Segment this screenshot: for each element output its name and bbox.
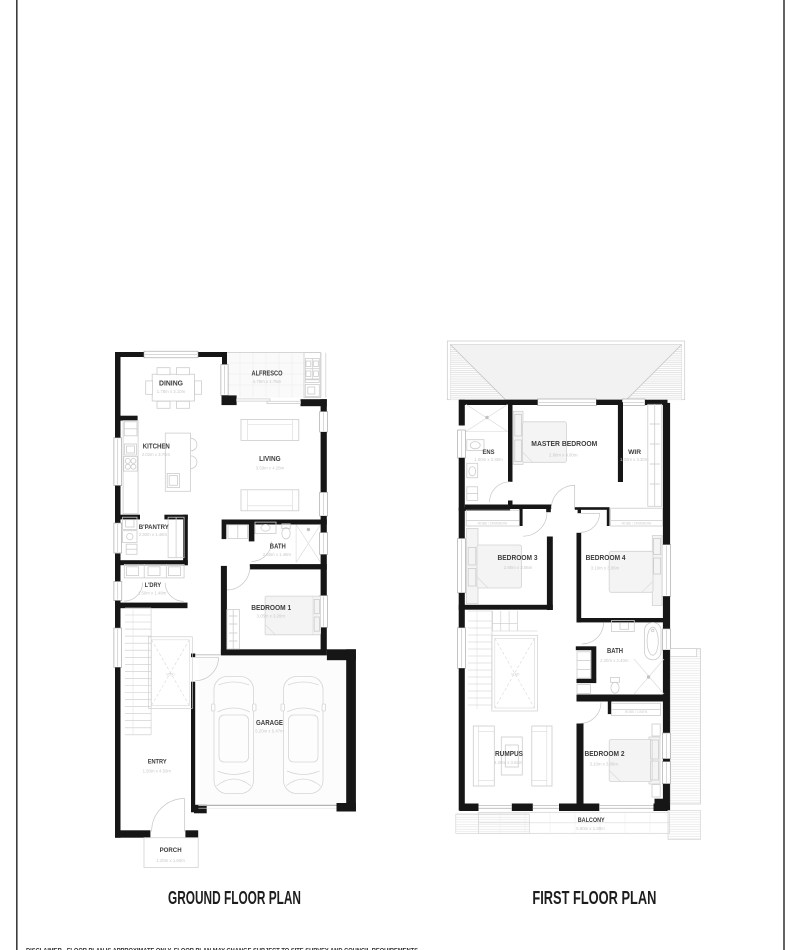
svg-text:3.59m x 4.28m: 3.59m x 4.28m xyxy=(256,466,285,471)
svg-text:2.80m x 3.06m: 2.80m x 3.06m xyxy=(504,565,533,570)
svg-text:KITCHEN: KITCHEN xyxy=(143,444,170,451)
svg-text:ROBE / DRAWERS: ROBE / DRAWERS xyxy=(478,522,508,526)
svg-text:L'DRY: L'DRY xyxy=(145,582,162,589)
svg-text:GROUND FLOOR PLAN: GROUND FLOOR PLAN xyxy=(168,888,301,908)
svg-text:GARAGE: GARAGE xyxy=(256,720,283,727)
svg-text:5.20m x 5.47m: 5.20m x 5.47m xyxy=(255,728,284,733)
svg-text:ROBE / LINEN: ROBE / LINEN xyxy=(625,710,648,714)
svg-text:WIR: WIR xyxy=(628,449,641,456)
svg-text:BEDROOM 2: BEDROOM 2 xyxy=(585,751,625,758)
svg-text:2.20m x 2.40m: 2.20m x 2.40m xyxy=(600,658,629,663)
svg-text:ALFRESCO: ALFRESCO xyxy=(252,371,283,378)
svg-text:BATH: BATH xyxy=(270,544,286,551)
svg-text:2.30m x 1.48m: 2.30m x 1.48m xyxy=(139,532,168,537)
svg-text:BALCONY: BALCONY xyxy=(578,817,606,824)
svg-text:VOID: VOID xyxy=(166,672,175,676)
svg-text:FIRST FLOOR PLAN: FIRST FLOOR PLAN xyxy=(532,888,656,908)
svg-text:BEDROOM 4: BEDROOM 4 xyxy=(586,555,626,562)
svg-text:3.10m x 3.06m: 3.10m x 3.06m xyxy=(590,762,619,767)
svg-text:DINING: DINING xyxy=(159,381,184,388)
svg-text:RUMPUS: RUMPUS xyxy=(495,751,523,758)
svg-text:3.05m x 3.20m: 3.05m x 3.20m xyxy=(256,613,285,618)
svg-text:5.90m x 1.80m: 5.90m x 1.80m xyxy=(576,826,605,831)
svg-text:1.50m x 1.48m: 1.50m x 1.48m xyxy=(138,591,167,596)
svg-text:PORCH: PORCH xyxy=(160,847,182,854)
svg-text:ROBE / DRAWERS: ROBE / DRAWERS xyxy=(622,521,652,525)
svg-text:1.78m x 3.10m: 1.78m x 3.10m xyxy=(157,389,186,394)
svg-text:BEDROOM 1: BEDROOM 1 xyxy=(251,605,291,612)
svg-text:4.20m x 3.62m: 4.20m x 3.62m xyxy=(494,760,523,765)
svg-text:ENTRY: ENTRY xyxy=(148,759,168,766)
svg-text:1.00m x 3.30m: 1.00m x 3.30m xyxy=(620,457,649,462)
svg-text:VOID: VOID xyxy=(511,672,520,676)
svg-text:MASTER BEDROOM: MASTER BEDROOM xyxy=(531,441,597,448)
svg-text:2.02m x 3.78m: 2.02m x 3.78m xyxy=(142,452,171,457)
svg-text:3.10m x 3.06m: 3.10m x 3.06m xyxy=(591,566,620,571)
svg-text:1.20m x 1.60m: 1.20m x 1.60m xyxy=(156,858,185,863)
svg-text:1.50m x 4.50m: 1.50m x 4.50m xyxy=(143,769,172,774)
svg-text:B'PANTRY: B'PANTRY xyxy=(139,524,170,531)
svg-text:ENS: ENS xyxy=(483,449,496,456)
svg-text:1.00m x 2.80m: 1.00m x 2.80m xyxy=(474,457,503,462)
svg-text:2.55m x 1.48m: 2.55m x 1.48m xyxy=(263,552,292,557)
svg-text:2.80m x 4.00m: 2.80m x 4.00m xyxy=(549,453,578,458)
svg-text:BEDROOM 3: BEDROOM 3 xyxy=(498,555,538,562)
svg-text:LIVING: LIVING xyxy=(259,456,281,463)
svg-text:BATH: BATH xyxy=(607,648,623,655)
svg-text:4.70m x 1.75m: 4.70m x 1.75m xyxy=(253,379,282,384)
